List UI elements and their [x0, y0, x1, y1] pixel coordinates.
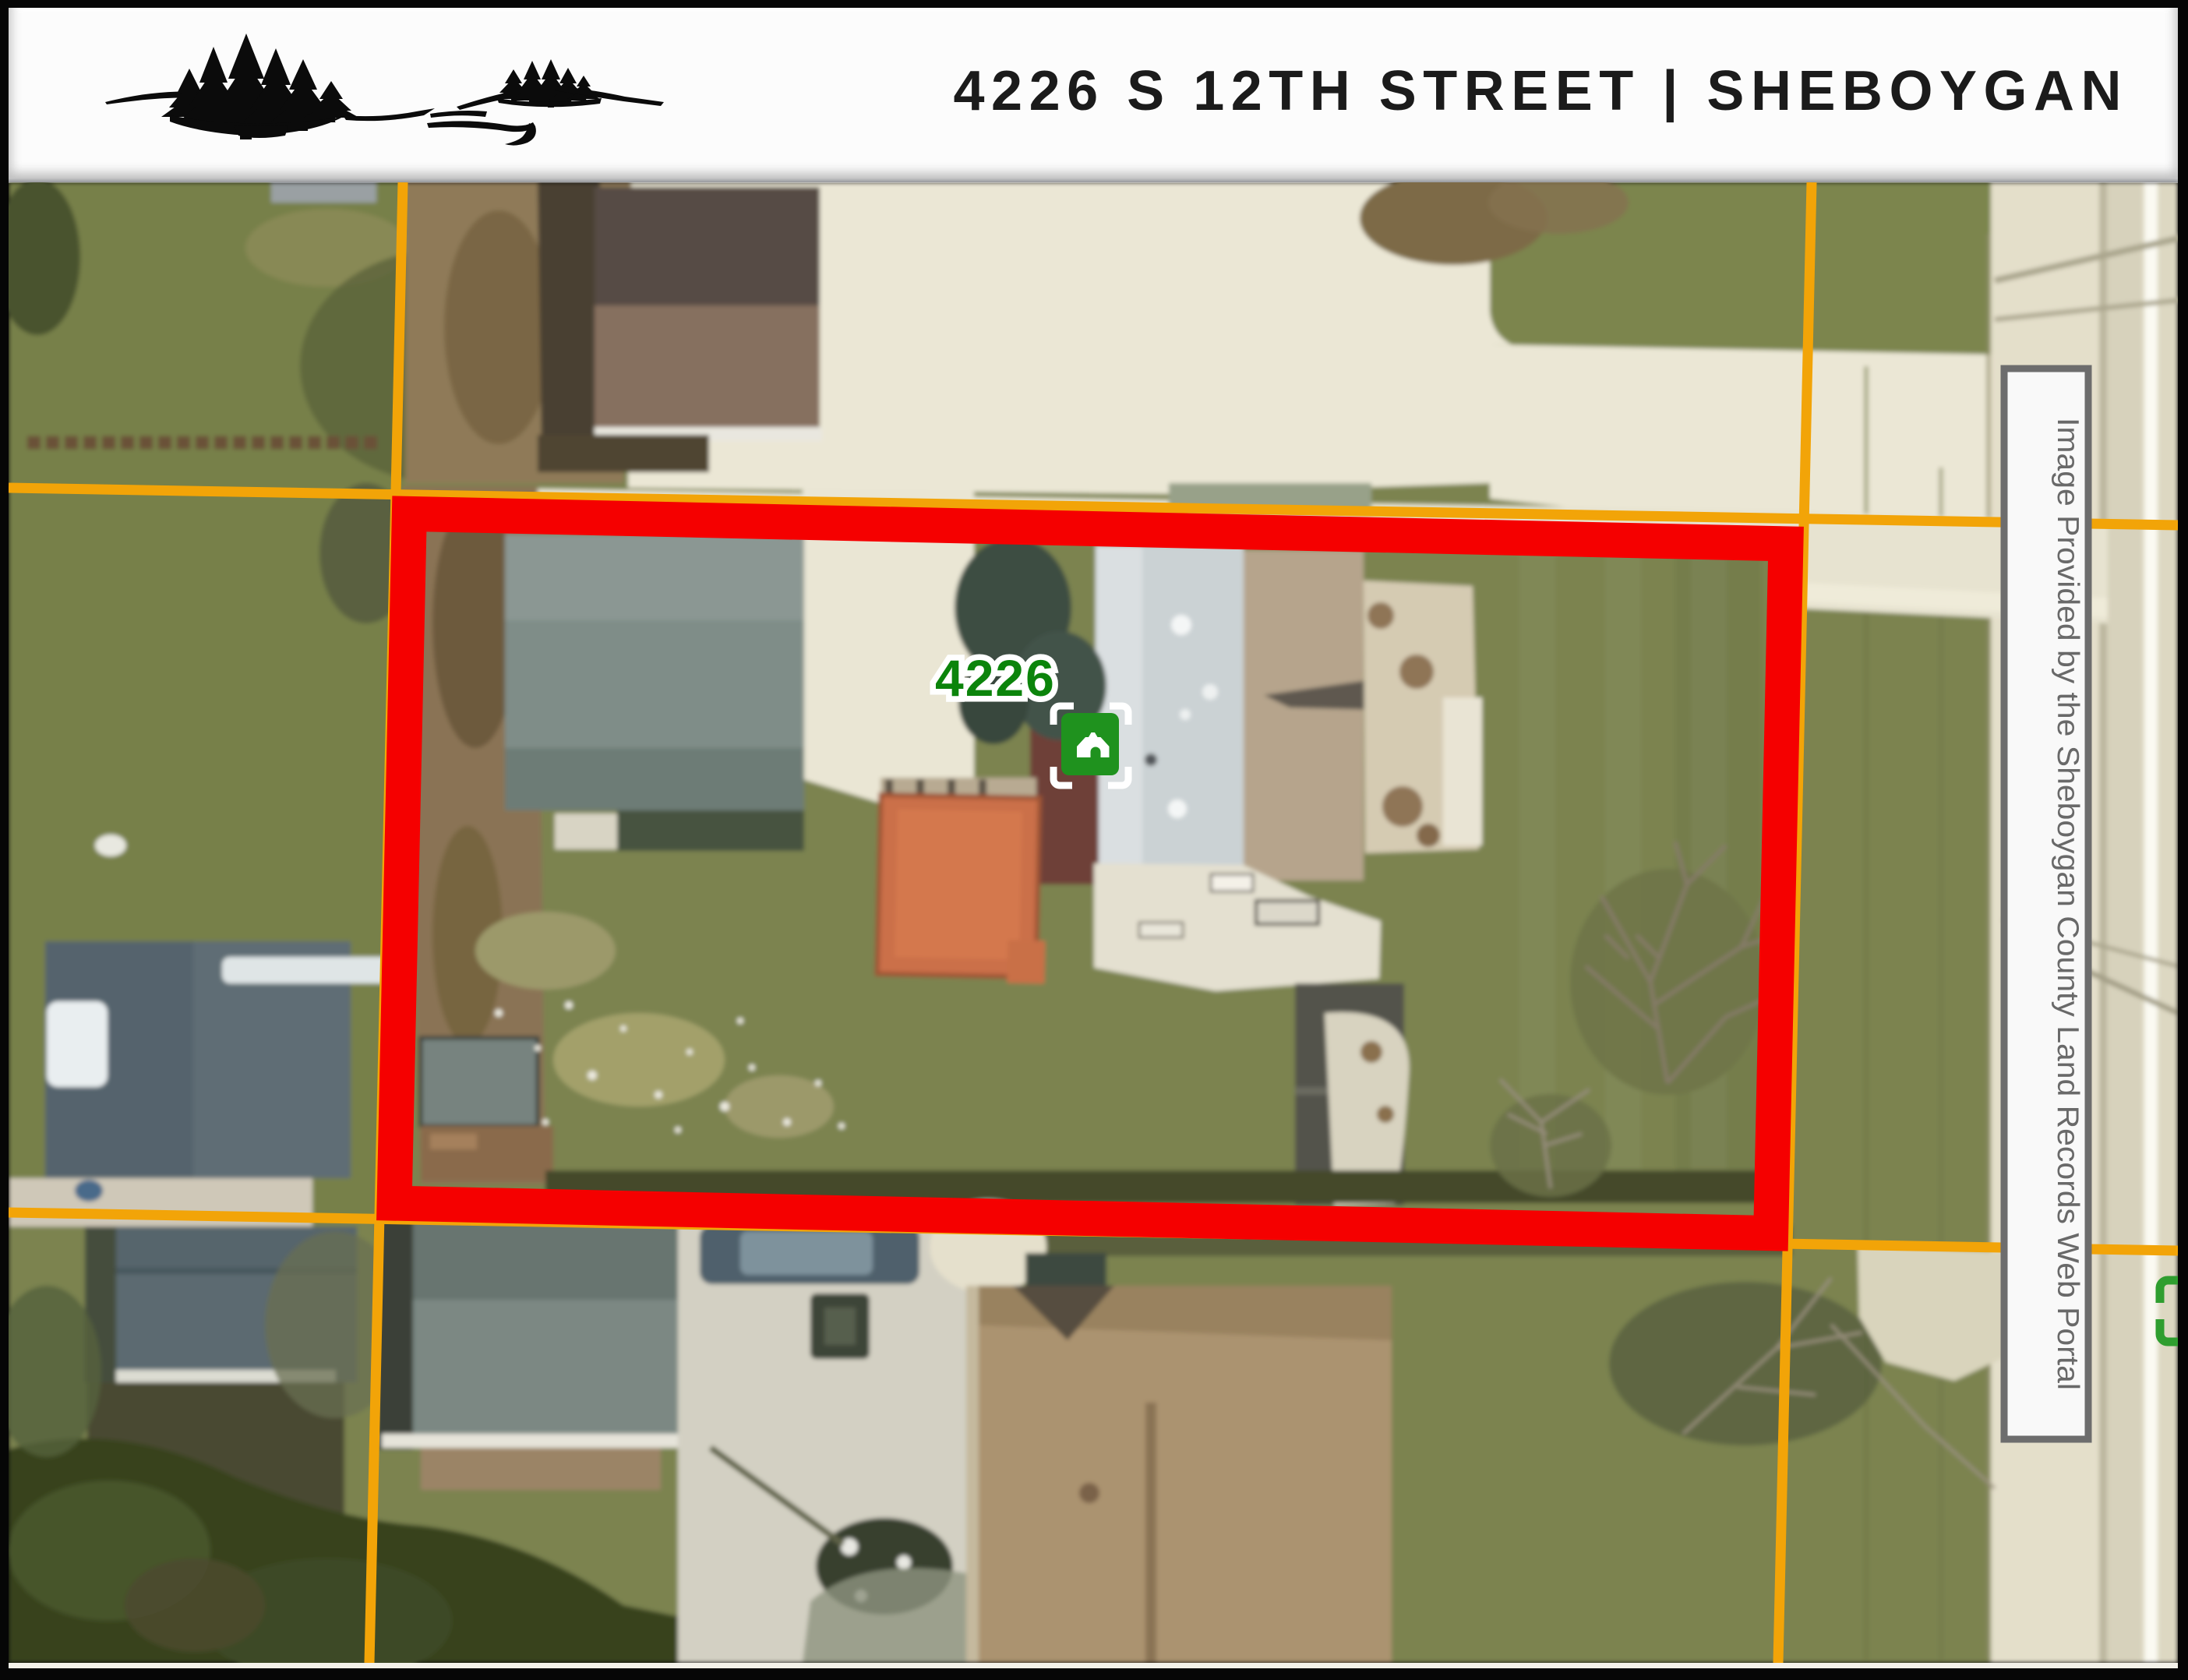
svg-text:Image Provided by the Sheboyga: Image Provided by the Sheboygan County L… — [2051, 418, 2084, 1390]
svg-text:4226: 4226 — [935, 649, 1056, 707]
